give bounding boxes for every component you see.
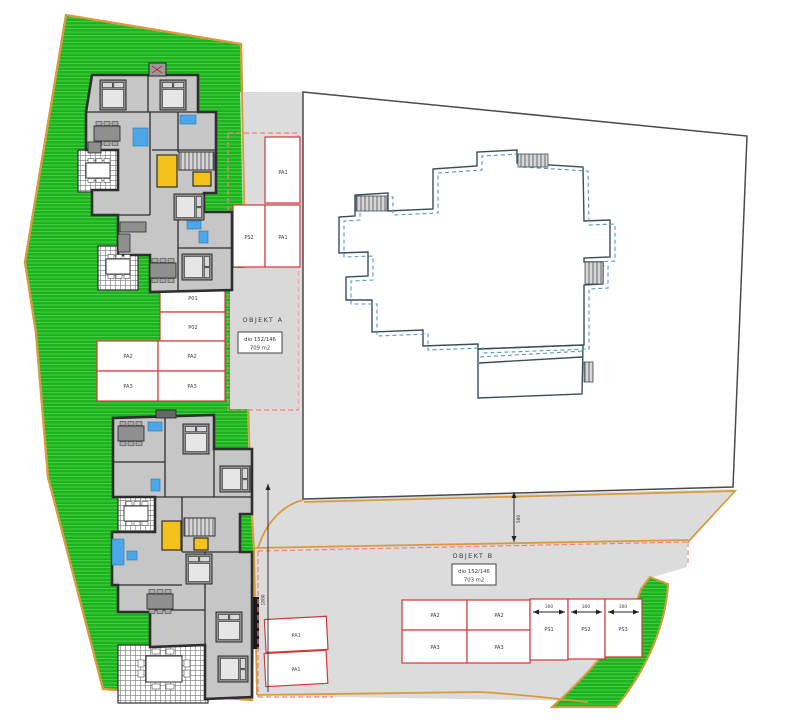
site-plan: PA1 PS2 PA1 P01 P02 PA2 PA2 PA3 PA3 OBJE…: [0, 0, 789, 720]
objekt-a-parcel: dio 152/146: [244, 337, 276, 343]
bathroom-fixture: [148, 422, 162, 431]
parking-stall-label: PA2: [187, 354, 196, 360]
stall-width-label: 300: [582, 604, 590, 610]
parking-stall-label: PA3: [187, 384, 196, 390]
parking-stall-label: PA2: [430, 613, 439, 619]
table-icon: [118, 422, 144, 446]
bathroom-fixture: [199, 231, 208, 243]
terrace-table-icon: [86, 159, 110, 183]
parking-stall-label: PA3: [430, 645, 439, 651]
footprint-stair: [518, 154, 548, 167]
objekt-b-labels: OBJEKT B dio 152/146 703 m2: [452, 552, 496, 585]
bathroom-fixture: [112, 539, 124, 565]
driveway-dimension-label: 1800: [261, 594, 267, 605]
elevator: [157, 155, 177, 187]
stall-width-label: 300: [619, 604, 627, 610]
terrace-table-icon: [124, 502, 148, 526]
parking-stall-label: PS2: [581, 627, 590, 633]
objekt-b-title: OBJEKT B: [452, 552, 493, 560]
bathroom-fixture: [187, 221, 201, 229]
armchair: [88, 142, 101, 153]
bathroom-fixture: [133, 128, 148, 146]
site-plan-drawing: PA1 PS2 PA1 P01 P02 PA2 PA2 PA3 PA3 OBJE…: [0, 0, 789, 720]
parking-stall-label: PA1: [291, 633, 301, 639]
staircase: [179, 152, 214, 170]
bed-icon: [174, 194, 204, 220]
parking-stall-label: P02: [188, 325, 197, 331]
objekt-a-title: OBJEKT A: [242, 316, 283, 324]
parking-stall-label: PS1: [544, 627, 553, 633]
objekt-a-area: 709 m2: [250, 346, 270, 352]
sofa: [118, 234, 130, 252]
sofa: [120, 222, 146, 232]
parking-stall-label: P01: [188, 296, 197, 302]
footprint-stair: [585, 262, 603, 284]
bed-icon: [183, 424, 209, 454]
parking-stall-label: PA1: [278, 170, 287, 176]
bathroom-fixture: [180, 115, 196, 124]
building-b-floorplan: [112, 410, 252, 703]
staircase: [184, 518, 215, 536]
bed-icon: [216, 612, 242, 642]
elevator: [162, 521, 181, 550]
bed-icon: [160, 80, 186, 110]
footprint-stair: [356, 196, 387, 211]
parking-stall-label: PS3: [618, 627, 627, 633]
stall-width-label: 300: [545, 604, 553, 610]
parking-stall-label: PA3: [123, 384, 132, 390]
bed-icon: [182, 254, 212, 280]
table-icon: [150, 259, 176, 283]
bed-icon: [186, 554, 212, 584]
footprint-stair: [584, 362, 593, 382]
bed-icon: [220, 466, 250, 492]
parking-stall-label: PS2: [244, 235, 253, 241]
elevator: [194, 538, 208, 550]
parking-stall-label: PA2: [494, 613, 503, 619]
objekt-b-area: 703 m2: [464, 578, 484, 584]
parking-stall-label: PA1: [291, 667, 301, 673]
table-icon: [147, 590, 173, 614]
parking-stall-label: PA2: [123, 354, 132, 360]
parking-stall-label: PA1: [278, 235, 287, 241]
parking-stall-label: PA3: [494, 645, 503, 651]
elevator: [193, 172, 211, 186]
bathroom-fixture: [151, 479, 160, 491]
bed-icon: [100, 80, 126, 110]
bathroom-fixture: [127, 551, 137, 560]
objekt-b-parcel: dio 152/146: [458, 569, 490, 575]
terrace-table-icon: [106, 255, 130, 279]
objekt-a-labels: OBJEKT A dio 152/146 709 m2: [238, 316, 284, 353]
bed-icon: [218, 656, 248, 682]
entrance-canopy: [156, 410, 176, 418]
parcel-white: [303, 92, 747, 499]
road-width-dimension-label: 500: [516, 515, 522, 523]
